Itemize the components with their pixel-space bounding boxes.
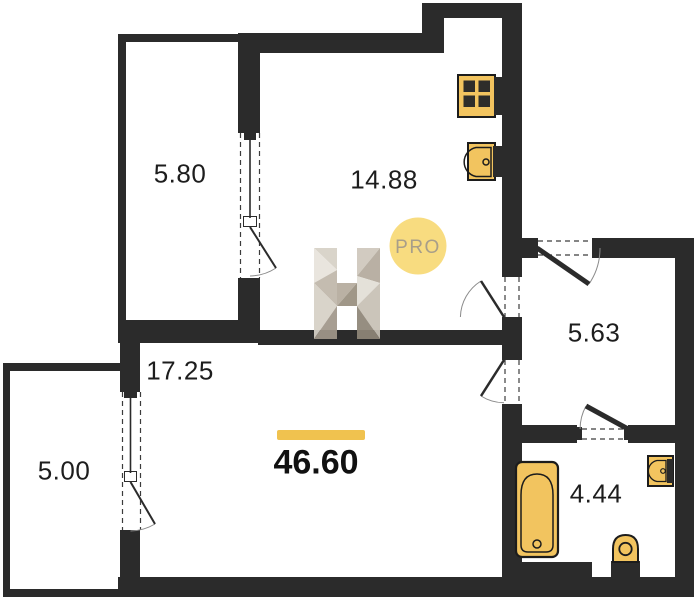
stove-icon [458, 75, 502, 117]
bathtub-icon [516, 462, 558, 557]
area-label-balcony: 5.00 [38, 456, 91, 487]
plan-graphics: PRO [0, 0, 694, 600]
door-leaf-entrance [537, 248, 589, 284]
washbasin-icon [648, 456, 673, 486]
h-logo-watermark [314, 248, 380, 339]
toilet-icon [611, 535, 640, 577]
door-leaf-loggia [250, 227, 276, 268]
area-label-hallway: 5.63 [568, 318, 621, 349]
area-label-living: 17.25 [146, 356, 214, 387]
area-label-kitchen: 14.88 [350, 165, 418, 196]
area-label-bathroom: 4.44 [570, 479, 623, 510]
total-area-label: 46.60 [273, 444, 358, 483]
door-leaf-balcony [131, 482, 156, 524]
door-leaf-bathroom [586, 406, 628, 429]
pro-badge-text: PRO [395, 237, 441, 258]
kitchen-sink-icon [464, 143, 502, 180]
door-leaf-kitchen [481, 281, 504, 317]
pro-badge: PRO [390, 218, 447, 275]
floor-plan: PRO 5.80 14.88 5.63 17.25 5.00 4.44 46.6… [0, 0, 694, 600]
door-leaf-living [481, 360, 504, 396]
total-area-accent-bar [277, 430, 365, 440]
area-label-loggia: 5.80 [154, 159, 207, 190]
